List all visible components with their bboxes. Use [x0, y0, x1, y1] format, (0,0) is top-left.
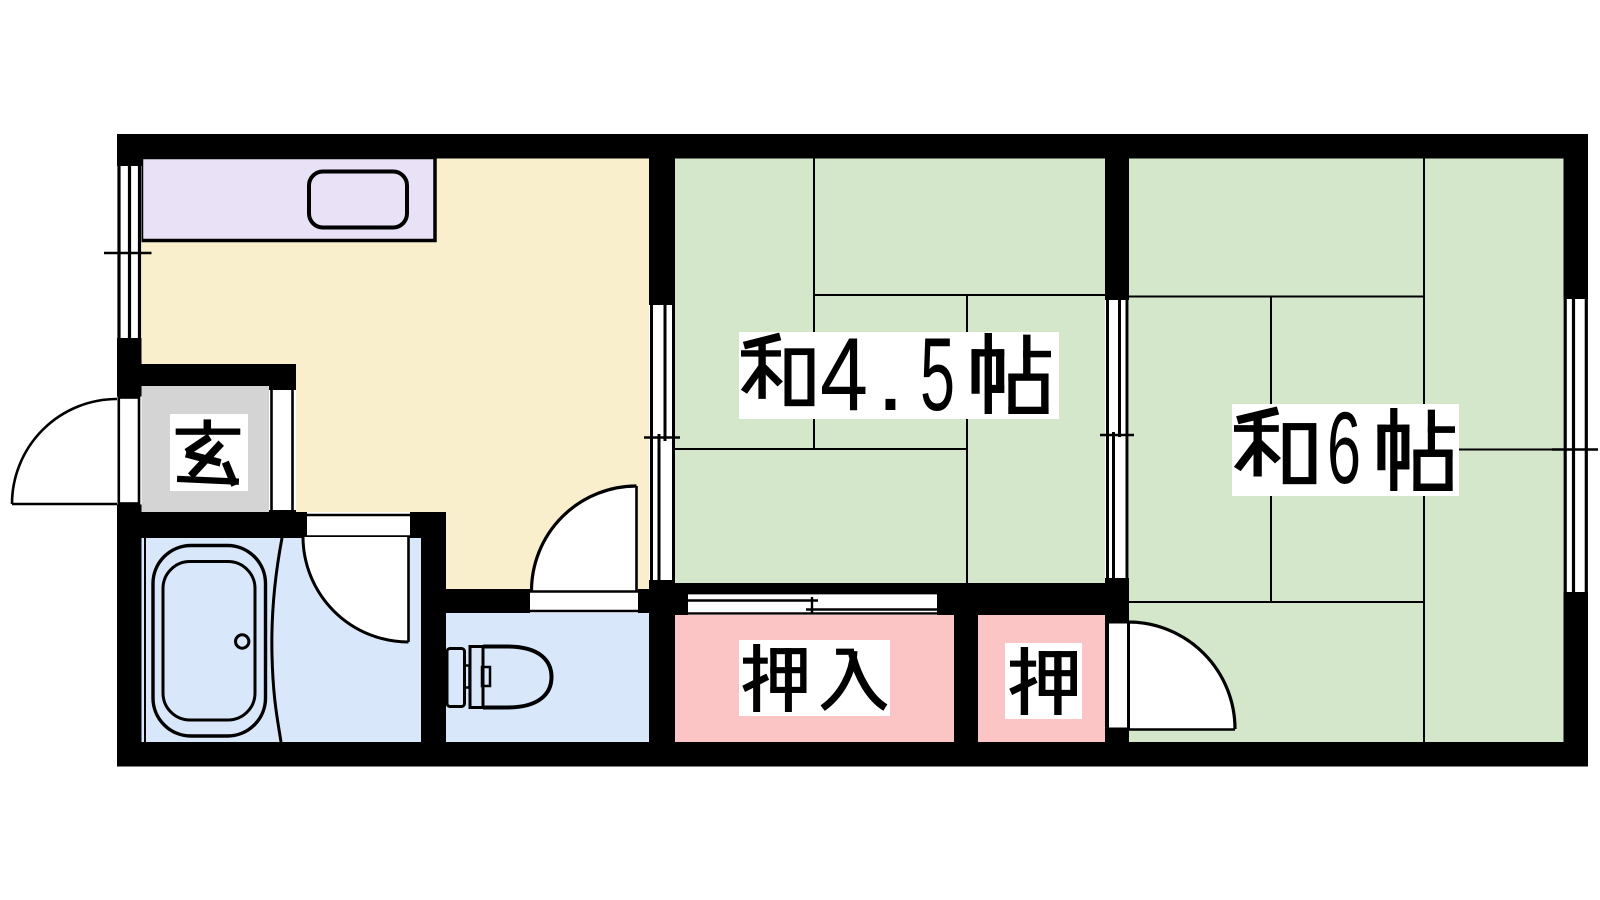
svg-text:6: 6: [1327, 391, 1361, 505]
svg-text:.: .: [876, 317, 905, 433]
svg-text:4: 4: [820, 317, 868, 433]
svg-text:5: 5: [920, 317, 955, 433]
